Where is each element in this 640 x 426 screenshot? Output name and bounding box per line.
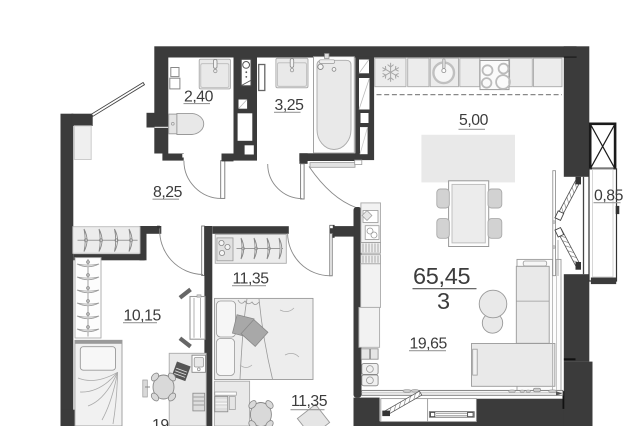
svg-text:0,85: 0,85 bbox=[594, 188, 624, 205]
svg-text:19: 19 bbox=[152, 417, 169, 426]
svg-text:3: 3 bbox=[437, 288, 450, 314]
svg-text:8,25: 8,25 bbox=[153, 184, 183, 201]
svg-text:3,25: 3,25 bbox=[275, 97, 305, 114]
svg-text:11,35: 11,35 bbox=[291, 393, 328, 410]
svg-text:10,15: 10,15 bbox=[124, 308, 162, 325]
svg-text:19,65: 19,65 bbox=[410, 336, 448, 353]
svg-text:11,35: 11,35 bbox=[233, 271, 270, 288]
svg-text:65,45: 65,45 bbox=[413, 263, 471, 289]
svg-text:2,40: 2,40 bbox=[184, 89, 214, 106]
svg-text:5,00: 5,00 bbox=[459, 112, 489, 129]
